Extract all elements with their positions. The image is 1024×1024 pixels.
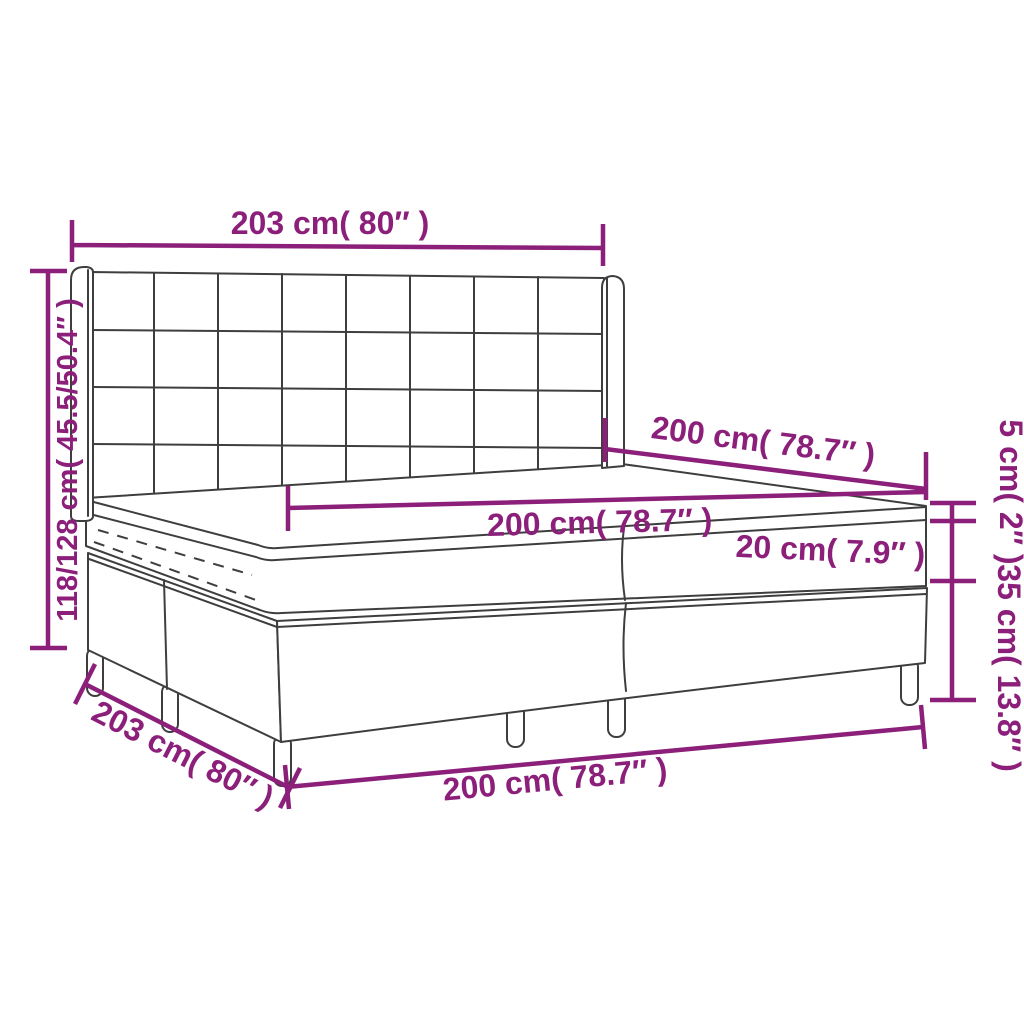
diagram-canvas: 203 cm( 80″ ) 118/128 cm( 45.5/50.4″ ) 2… [0, 0, 1024, 1024]
dim-base-width-label: 200 cm( 78.7″ ) [441, 751, 669, 808]
dim-headboard-width: 203 cm( 80″ ) [72, 205, 603, 266]
bed-dimension-diagram: 203 cm( 80″ ) 118/128 cm( 45.5/50.4″ ) 2… [0, 0, 1024, 1024]
dim-bed-height: 118/128 cm( 45.5/50.4″ ) [30, 271, 84, 648]
dim-right-heights: 5 cm( 2″ ) 35 cm( 13.8″ ) [930, 419, 1024, 771]
dim-base-height-label: 35 cm( 13.8″ ) [991, 564, 1024, 771]
dim-headboard-width-label: 203 cm( 80″ ) [231, 205, 430, 241]
dimension-line [930, 503, 976, 700]
dim-mattress-width-label: 200 cm( 78.7″ ) [487, 501, 713, 543]
dim-bed-height-label: 118/128 cm( 45.5/50.4″ ) [52, 298, 84, 621]
dim-mattress-depth-label: 200 cm( 78.7″ ) [649, 409, 877, 473]
dim-topper-height-label: 5 cm( 2″ ) [993, 419, 1024, 564]
